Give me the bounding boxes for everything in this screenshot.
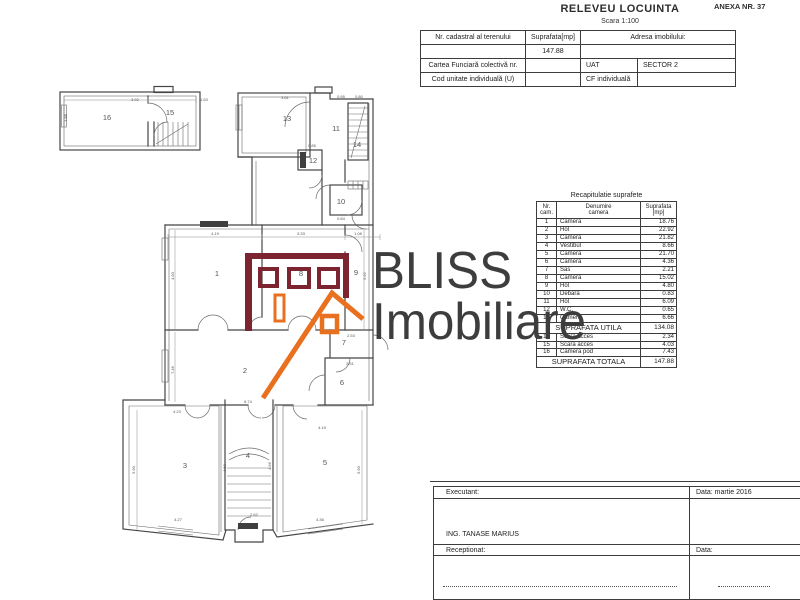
room-number-label: 12 — [309, 156, 317, 165]
dimension-label: 5.92 — [362, 271, 367, 280]
dimension-label: 1.08 — [354, 231, 363, 236]
cf-individuala-label: CF individuală — [581, 73, 638, 87]
recap-title: Recapitulatie suprafete — [536, 192, 677, 199]
bliss-logo-wordmark: BLISS Imobiliare — [372, 246, 586, 348]
executant-label: Executant: — [434, 487, 690, 499]
dimension-label: 1.63 — [200, 97, 209, 102]
receptionat-label: Receptionat: — [434, 544, 690, 556]
uat-label: UAT — [581, 59, 638, 73]
logo-roof — [263, 293, 363, 398]
dimension-label: 5.90 — [356, 465, 361, 474]
recap-row: 3Camera21.82 — [537, 235, 677, 243]
room-number-label: 3 — [183, 461, 187, 470]
adresa-header: Adresa imobilului: — [581, 31, 736, 45]
dimension-label: 2.53 — [347, 333, 356, 338]
anexa-label: ANEXA NR. 37 — [714, 2, 765, 11]
title-block: Executant: Data: martie 2016 ING. TANASE… — [433, 486, 800, 600]
logo-line2: Imobiliare — [372, 297, 586, 348]
dimension-label: 4.36 — [316, 517, 325, 522]
scale-label: Scara 1:100 — [530, 18, 710, 25]
carte-funciara-value — [526, 59, 581, 73]
cadastral-number-value — [421, 45, 526, 59]
cadastral-info-table: Nr. cadastral al terenului Suprafata[mp]… — [420, 30, 736, 87]
adresa-value — [581, 45, 736, 59]
executant-name: ING. TANASE MARIUS — [434, 499, 690, 544]
data-receptionat: Data: — [690, 544, 800, 556]
dimension-label: 3.61 — [281, 95, 290, 100]
suprafata-header: Suprafata[mp] — [526, 31, 581, 45]
dimension-label: 4.60 — [170, 271, 175, 280]
cadastral-number-header: Nr. cadastral al terenului — [421, 31, 526, 45]
room-number-label: 2 — [243, 366, 247, 375]
logo-wall-right — [343, 253, 349, 298]
title-block-top-rule — [430, 481, 800, 482]
room-number-label: 13 — [283, 114, 291, 123]
dimension-label: 6.74 — [244, 399, 253, 404]
dimension-label: 4.23 — [173, 409, 182, 414]
dimension-label: 1.88 — [63, 113, 68, 122]
dimension-label: 3.92 — [131, 97, 140, 102]
recap-row: 1Camera18.76 — [537, 219, 677, 227]
carte-funciara-label: Cartea Funciară colectivă nr. — [421, 59, 526, 73]
room-number-label: 15 — [166, 108, 174, 117]
recap-totala-row: SUPRAFATA TOTALA147.88 — [537, 356, 677, 367]
dimension-label: 3.33 — [297, 231, 306, 236]
dimension-label: 2.51 — [346, 361, 355, 366]
receptionat-signature-area — [434, 556, 690, 599]
room-number-label: 11 — [332, 124, 340, 133]
recap-row: 2Hol22.92 — [537, 227, 677, 235]
dimension-label: 4.27 — [174, 517, 183, 522]
logo-wall-top — [247, 253, 347, 259]
dimension-label: 7.46 — [170, 365, 175, 374]
dimension-label: 0.85 — [308, 143, 317, 148]
room-number-label: 5 — [323, 458, 327, 467]
cod-unitate-value — [526, 73, 581, 87]
suprafata-value: 147.88 — [526, 45, 581, 59]
logo-window-3 — [319, 269, 338, 287]
dimension-label: 4.19 — [318, 425, 327, 430]
recap-header-name: Denumirecamera — [557, 202, 641, 219]
logo-chimney — [275, 295, 284, 321]
room-number-label: 1 — [215, 269, 219, 278]
room-number-label: 9 — [354, 268, 358, 277]
dimension-label: 4.50 — [222, 463, 227, 472]
recap-header-nr: Nr.cam. — [537, 202, 557, 219]
dimension-label: 2.62 — [250, 512, 259, 517]
recap-header-area: Suprafata[mp] — [641, 202, 677, 219]
dimension-label: 4.19 — [211, 231, 220, 236]
page-title: RELEVEU LOCUINTA — [530, 3, 710, 15]
dimension-label: 5.90 — [131, 465, 136, 474]
sector-value: SECTOR 2 — [638, 59, 736, 73]
room-number-label: 4 — [246, 451, 250, 460]
floor-plan-drawing: 123456789101112131415163.921.631.883.610… — [30, 80, 430, 545]
dimension-label: 0.80 — [355, 94, 364, 99]
cod-unitate-label: Cod unitate individuală (U) — [421, 73, 526, 87]
room-number-label: 7 — [342, 338, 346, 347]
room-number-label: 14 — [353, 140, 361, 149]
dimension-label: 0.95 — [337, 94, 346, 99]
logo-wall-left — [245, 253, 252, 331]
room-number-label: 8 — [299, 269, 303, 278]
logo-line1: BLISS — [372, 246, 586, 297]
data-receptionat-value — [690, 556, 800, 599]
cf-individuala-value — [638, 73, 736, 87]
data-executant: Data: martie 2016 — [690, 487, 800, 499]
data-executant-value — [690, 499, 800, 544]
room-number-label: 16 — [103, 113, 111, 122]
dimension-label: 0.84 — [337, 216, 346, 221]
room-number-label: 6 — [340, 378, 344, 387]
dimension-label: 4.66 — [267, 461, 272, 470]
room-number-label: 10 — [337, 197, 345, 206]
